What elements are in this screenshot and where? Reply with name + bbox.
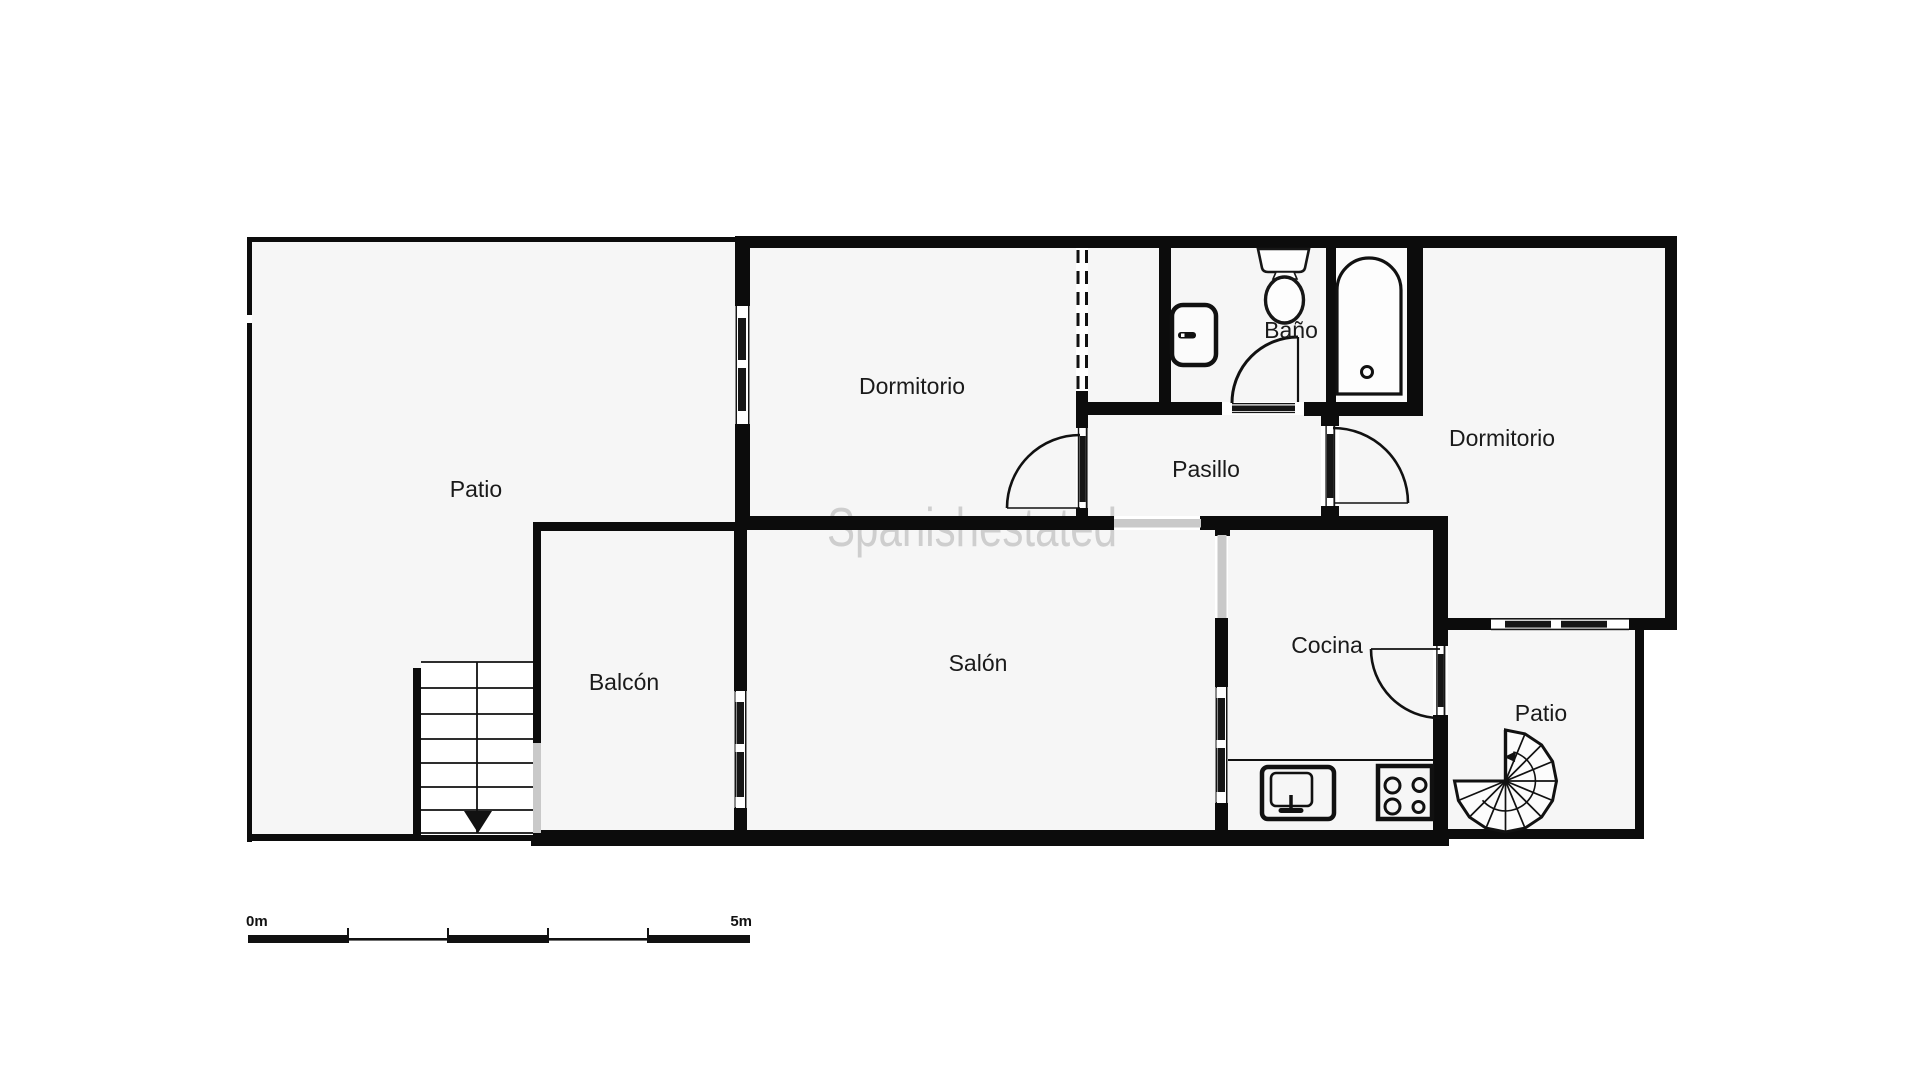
svg-text:Pasillo: Pasillo — [1172, 456, 1240, 482]
svg-text:Patio: Patio — [450, 476, 502, 502]
svg-text:Dormitorio: Dormitorio — [859, 373, 965, 399]
svg-text:Dormitorio: Dormitorio — [1449, 425, 1555, 451]
svg-text:Balcón: Balcón — [589, 669, 659, 695]
svg-text:Patio: Patio — [1515, 700, 1567, 726]
svg-text:5m: 5m — [730, 913, 752, 930]
svg-text:Baño: Baño — [1264, 317, 1318, 343]
svg-text:Salón: Salón — [949, 650, 1008, 676]
svg-text:0m: 0m — [246, 913, 268, 930]
svg-text:Cocina: Cocina — [1291, 632, 1363, 658]
